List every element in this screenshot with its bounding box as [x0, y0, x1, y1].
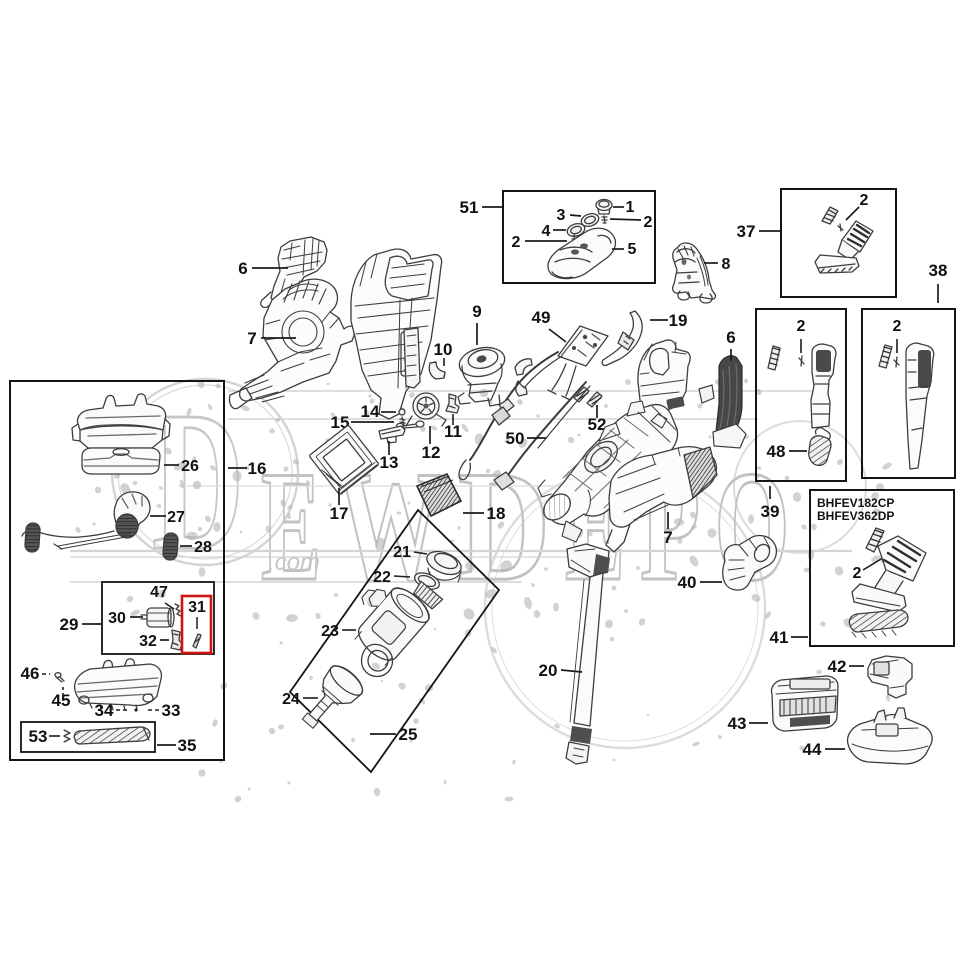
svg-text:34: 34 [95, 701, 114, 720]
svg-text:19: 19 [669, 311, 688, 330]
svg-text:2: 2 [512, 234, 521, 251]
svg-text:33: 33 [162, 701, 181, 720]
svg-text:18: 18 [487, 504, 506, 523]
svg-text:12: 12 [422, 443, 441, 462]
svg-text:5: 5 [628, 241, 637, 258]
svg-text:27: 27 [167, 509, 185, 526]
svg-text:47: 47 [150, 584, 168, 601]
svg-text:29: 29 [60, 615, 79, 634]
svg-text:41: 41 [770, 628, 789, 647]
svg-text:E: E [261, 439, 321, 614]
svg-text:2: 2 [893, 318, 902, 335]
svg-text:48: 48 [767, 442, 786, 461]
svg-text:16: 16 [248, 459, 267, 478]
svg-text:2: 2 [797, 318, 806, 335]
svg-text:BHFEV362DP: BHFEV362DP [817, 509, 894, 523]
svg-text:8: 8 [722, 256, 731, 273]
svg-text:51: 51 [460, 198, 479, 217]
svg-text:O: O [715, 439, 790, 614]
svg-text:BHFEV182CP: BHFEV182CP [817, 496, 894, 510]
svg-text:37: 37 [737, 222, 756, 241]
svg-text:9: 9 [472, 302, 481, 321]
svg-text:D: D [458, 439, 550, 614]
svg-text:21: 21 [393, 544, 411, 561]
svg-text:35: 35 [178, 736, 197, 755]
svg-text:32: 32 [139, 633, 157, 650]
svg-text:42: 42 [828, 657, 847, 676]
svg-text:46: 46 [21, 664, 40, 683]
svg-text:53: 53 [29, 727, 48, 746]
svg-text:20: 20 [539, 661, 558, 680]
svg-text:49: 49 [532, 308, 551, 327]
svg-text:17: 17 [330, 504, 349, 523]
svg-text:1: 1 [626, 199, 635, 216]
svg-text:13: 13 [380, 453, 399, 472]
svg-text:26: 26 [181, 458, 199, 475]
svg-text:6: 6 [726, 328, 735, 347]
svg-text:6: 6 [238, 259, 247, 278]
svg-text:2: 2 [644, 214, 653, 231]
svg-text:25: 25 [399, 725, 418, 744]
svg-text:30: 30 [108, 610, 126, 627]
svg-text:44: 44 [803, 740, 822, 759]
svg-text:4: 4 [542, 223, 551, 240]
svg-text:7: 7 [247, 329, 256, 348]
svg-text:2: 2 [860, 192, 869, 209]
svg-text:31: 31 [188, 599, 206, 616]
svg-text:.com: .com [268, 549, 320, 576]
svg-text:7: 7 [663, 528, 672, 547]
svg-text:50: 50 [506, 429, 525, 448]
svg-text:2: 2 [853, 565, 862, 582]
svg-text:39: 39 [761, 502, 780, 521]
svg-text:38: 38 [929, 261, 948, 280]
svg-text:22: 22 [373, 569, 391, 586]
svg-text:10: 10 [434, 340, 453, 359]
svg-text:23: 23 [321, 623, 339, 640]
svg-text:43: 43 [728, 714, 747, 733]
svg-text:14: 14 [361, 402, 380, 421]
svg-text:45: 45 [52, 691, 71, 710]
svg-text:28: 28 [194, 539, 212, 556]
svg-text:3: 3 [557, 207, 566, 224]
svg-text:24: 24 [282, 691, 300, 708]
svg-text:40: 40 [678, 573, 697, 592]
